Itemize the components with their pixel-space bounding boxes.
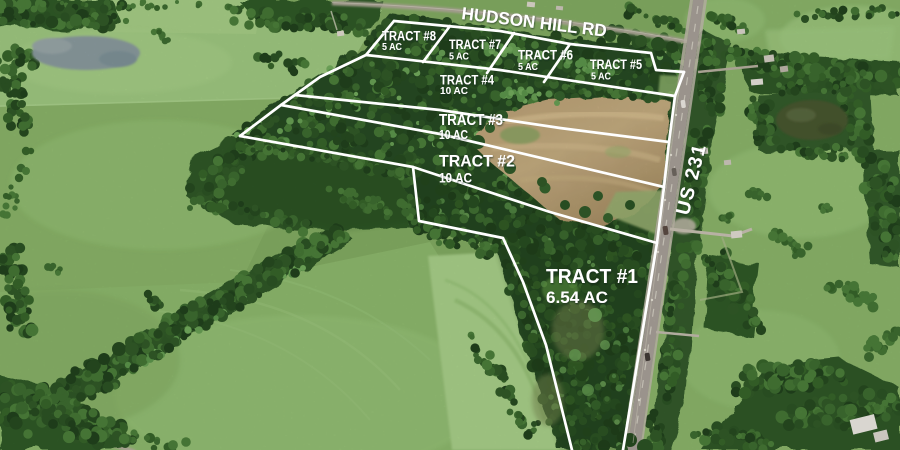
svg-text:10 AC: 10 AC — [439, 171, 472, 186]
svg-text:TRACT #1: TRACT #1 — [546, 265, 638, 288]
svg-text:5 AC: 5 AC — [382, 42, 402, 53]
svg-text:TRACT #2: TRACT #2 — [439, 153, 515, 171]
svg-text:TRACT #6: TRACT #6 — [518, 48, 573, 63]
svg-text:5 AC: 5 AC — [449, 52, 469, 63]
svg-text:TRACT #5: TRACT #5 — [590, 57, 642, 72]
svg-text:10 AC: 10 AC — [440, 86, 468, 97]
svg-text:6.54 AC: 6.54 AC — [546, 288, 608, 307]
svg-text:5 AC: 5 AC — [518, 62, 538, 73]
svg-text:5 AC: 5 AC — [591, 72, 611, 83]
svg-text:TRACT #3: TRACT #3 — [439, 112, 503, 129]
svg-text:10 AC: 10 AC — [439, 128, 468, 142]
svg-text:TRACT #7: TRACT #7 — [449, 37, 501, 52]
